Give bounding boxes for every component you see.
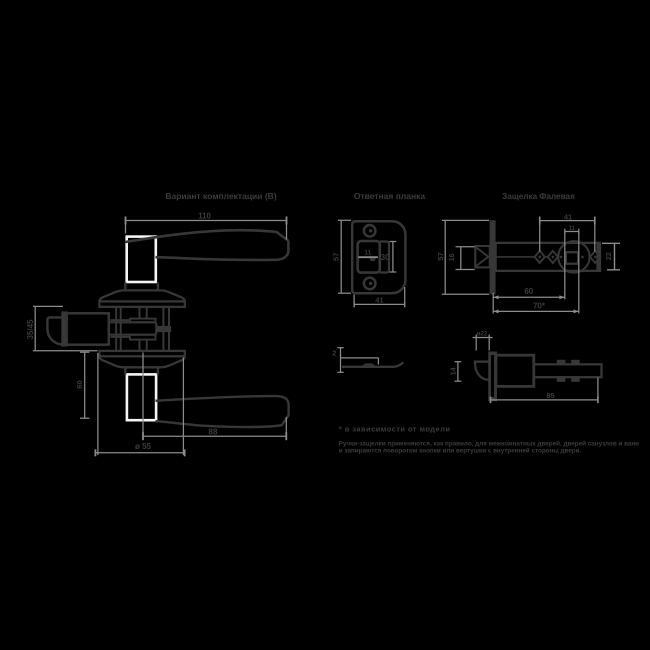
- svg-text:Защелка Фалевая: Защелка Фалевая: [502, 192, 575, 201]
- svg-text:ø22: ø22: [477, 331, 488, 337]
- svg-text:110: 110: [198, 212, 211, 221]
- svg-text:22: 22: [604, 252, 613, 260]
- svg-text:41: 41: [375, 295, 383, 304]
- svg-text:Ручки-защелки применяются, как: Ручки-защелки применяются, как правило, …: [339, 439, 639, 447]
- svg-text:41: 41: [564, 212, 572, 221]
- svg-text:Ответная планка: Ответная планка: [354, 191, 425, 201]
- svg-text:11: 11: [569, 226, 576, 232]
- svg-text:и запираются поворотом кнопки: и запираются поворотом кнопки или вертуш…: [339, 446, 582, 454]
- svg-text:Вариант комплектации (В): Вариант комплектации (В): [165, 191, 276, 201]
- svg-text:57: 57: [436, 252, 445, 260]
- svg-text:14: 14: [450, 367, 457, 375]
- svg-text:85: 85: [546, 391, 554, 400]
- svg-text:* в зависимости от модели: * в зависимости от модели: [339, 424, 451, 433]
- svg-text:ø 55: ø 55: [135, 442, 152, 451]
- svg-text:88: 88: [209, 428, 218, 437]
- svg-text:16: 16: [449, 253, 456, 261]
- svg-text:60: 60: [75, 380, 84, 388]
- svg-text:30: 30: [381, 253, 390, 262]
- svg-text:2: 2: [332, 350, 336, 357]
- svg-text:70*: 70*: [533, 302, 546, 311]
- svg-text:60: 60: [524, 287, 533, 296]
- svg-text:57: 57: [332, 253, 341, 261]
- svg-text:11: 11: [364, 250, 371, 257]
- svg-text:35/45: 35/45: [26, 319, 35, 340]
